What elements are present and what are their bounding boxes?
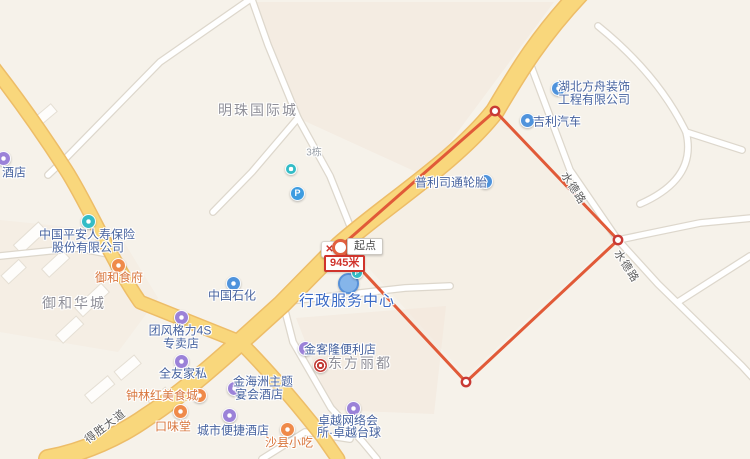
poi-label[interactable]: 宴会酒店	[235, 386, 283, 403]
measure-vertex[interactable]	[614, 236, 622, 244]
poi-label[interactable]: 中国石化	[208, 287, 256, 304]
measure-vertex[interactable]	[491, 107, 499, 115]
poi-label[interactable]: 普利司通轮胎	[415, 174, 487, 191]
poi-label[interactable]: 股份有限公司	[52, 239, 124, 256]
poi-label[interactable]: 沙县小吃	[265, 434, 313, 451]
parking-icon[interactable]: P	[290, 186, 305, 201]
poi-label[interactable]: 钟林红美食城	[126, 387, 198, 404]
area-label-building3: 3栋	[306, 144, 322, 159]
poi-small-icon[interactable]	[285, 163, 297, 175]
poi-label[interactable]: 专卖店	[163, 335, 199, 352]
measure-vertex[interactable]	[462, 378, 470, 386]
poi-label[interactable]: 吉利汽车	[533, 113, 581, 130]
area-label-mingzhu: 明珠国际城	[218, 100, 298, 120]
residence-poi-icon[interactable]	[313, 358, 328, 373]
poi-label[interactable]: 工程有限公司	[558, 91, 630, 108]
poi-label[interactable]: 酒店	[2, 164, 26, 181]
poi-label[interactable]: 城市便捷酒店	[197, 422, 269, 439]
poi-label[interactable]: 全友家私	[159, 365, 207, 382]
poi-label-highlighted[interactable]: 行政服务中心	[299, 290, 395, 311]
poi-label[interactable]: 口味堂	[155, 418, 191, 435]
map-canvas[interactable]: 得胜大道 水德路 水德路 明珠国际城 御和华城 东方丽都 3栋 P P 酒店 湖…	[0, 0, 750, 459]
poi-label[interactable]: 御和食府	[95, 269, 143, 286]
measure-distance-badge: 945米	[324, 255, 365, 272]
area-label-yuhehuacheng: 御和华城	[42, 293, 106, 313]
measure-start-tooltip: 起点	[347, 238, 383, 255]
poi-label[interactable]: 所·卓越台球	[317, 424, 381, 441]
poi-label[interactable]: 金客隆便利店	[304, 341, 376, 358]
